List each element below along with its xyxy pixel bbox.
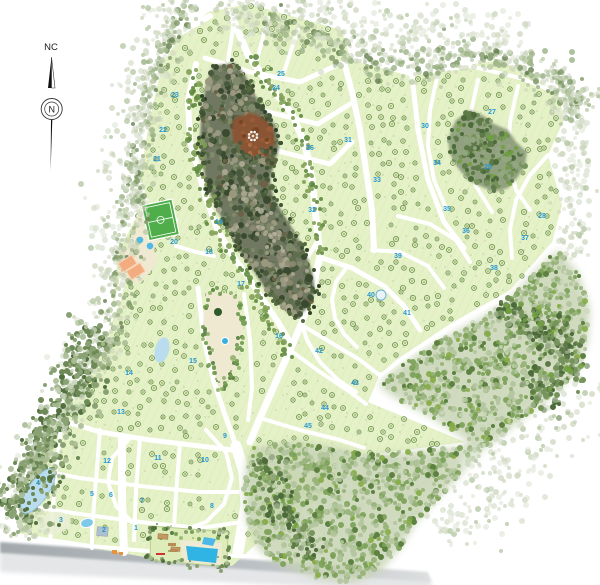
svg-text:26: 26 [306, 145, 314, 152]
svg-text:27: 27 [488, 109, 496, 116]
svg-text:33: 33 [373, 177, 381, 184]
svg-text:2: 2 [102, 527, 106, 534]
svg-text:30: 30 [421, 123, 429, 130]
svg-text:19: 19 [215, 219, 223, 226]
svg-text:17: 17 [237, 281, 245, 288]
svg-text:NC: NC [44, 42, 58, 53]
svg-text:45: 45 [304, 423, 312, 430]
svg-text:6: 6 [109, 492, 113, 499]
svg-text:31: 31 [344, 137, 352, 144]
svg-text:39: 39 [394, 253, 402, 260]
svg-text:35: 35 [443, 206, 451, 213]
svg-text:43: 43 [351, 380, 359, 387]
svg-text:28: 28 [538, 213, 546, 220]
svg-text:14: 14 [125, 370, 133, 377]
svg-text:1: 1 [134, 525, 138, 532]
svg-text:42: 42 [315, 348, 323, 355]
svg-text:34: 34 [433, 160, 441, 167]
svg-text:7: 7 [140, 498, 144, 505]
svg-text:11: 11 [154, 455, 162, 462]
svg-text:41: 41 [403, 310, 411, 317]
svg-text:4: 4 [36, 480, 40, 487]
svg-text:36: 36 [462, 228, 470, 235]
svg-text:15: 15 [189, 358, 197, 365]
svg-text:8: 8 [210, 503, 214, 510]
svg-text:21: 21 [153, 156, 161, 163]
svg-text:22: 22 [159, 127, 167, 134]
svg-text:23: 23 [171, 92, 179, 99]
svg-text:32: 32 [308, 207, 316, 214]
svg-text:44: 44 [321, 405, 329, 412]
svg-text:9: 9 [223, 433, 227, 440]
svg-text:37: 37 [521, 235, 529, 242]
svg-text:20: 20 [170, 239, 178, 246]
svg-text:16: 16 [275, 333, 283, 340]
svg-text:12: 12 [103, 458, 111, 465]
svg-text:N: N [48, 105, 55, 115]
svg-text:5: 5 [90, 491, 94, 498]
svg-text:3: 3 [59, 517, 63, 524]
svg-text:29: 29 [484, 164, 492, 171]
svg-text:13: 13 [117, 409, 125, 416]
svg-text:10: 10 [201, 457, 209, 464]
svg-text:18: 18 [205, 249, 213, 256]
svg-text:40: 40 [367, 292, 375, 299]
svg-text:25: 25 [277, 71, 285, 78]
svg-text:38: 38 [490, 265, 498, 272]
svg-text:24: 24 [272, 85, 280, 92]
